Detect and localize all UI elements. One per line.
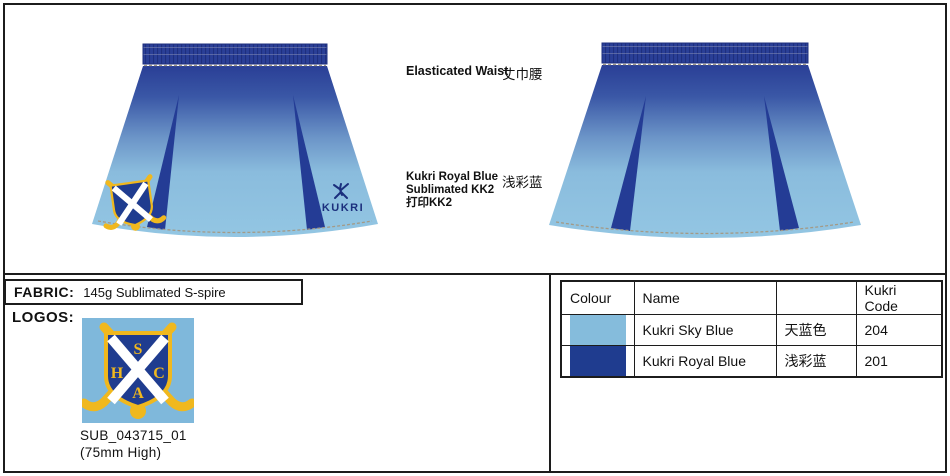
elastic-waistband: [602, 43, 808, 63]
panel-annotation: Kukri Royal Blue Sublimated KK2 打印KK2: [406, 171, 498, 210]
header-name: Name: [634, 281, 776, 315]
section-divider: [3, 273, 947, 275]
header-cn: [776, 281, 856, 315]
royal-blue-swatch: [570, 346, 626, 376]
panel-annotation-line2: Sublimated KK2: [406, 184, 498, 197]
waist-annotation: Elasticated Waist: [406, 64, 508, 78]
panel-divider: [549, 274, 551, 473]
sky-blue-swatch: [570, 315, 626, 345]
logo-caption: SUB_043715_01 (75mm High): [80, 427, 187, 461]
fabric-label: FABRIC:: [14, 284, 74, 300]
header-kukri-code: Kukri Code: [856, 281, 942, 315]
crest-letter-left: H: [111, 365, 124, 382]
skirt-back-view: [545, 41, 865, 265]
colour-name-cn: 天蓝色: [776, 315, 856, 346]
crest-letter-top: S: [134, 341, 143, 358]
swatch-cell: [561, 315, 634, 346]
crest-letter-bottom: A: [132, 385, 144, 402]
panel-annotation-line3: 打印KK2: [406, 197, 498, 210]
logo-size-note: (75mm High): [80, 444, 187, 461]
logo-code: SUB_043715_01: [80, 427, 187, 444]
panel-annotation-line1: Kukri Royal Blue: [406, 171, 498, 184]
header-colour: Colour: [561, 281, 634, 315]
kukri-code: 204: [856, 315, 942, 346]
kukri-wordmark: KUKRI: [322, 202, 364, 214]
skirt-body: [549, 65, 861, 238]
colour-table-header-row: Colour Name Kukri Code: [561, 281, 942, 315]
crest-letter-right: C: [153, 365, 165, 382]
colour-name: Kukri Royal Blue: [634, 346, 776, 377]
swatch-cell: [561, 346, 634, 377]
table-row: Kukri Sky Blue 天蓝色 204: [561, 315, 942, 346]
spec-sheet: KUKRI Elasticated Waist 丈: [0, 0, 950, 476]
logos-label: LOGOS:: [12, 309, 74, 326]
waist-annotation-cn: 丈巾腰: [502, 63, 543, 83]
fabric-box: FABRIC: 145g Sublimated S-spire: [4, 279, 303, 305]
elastic-waistband: [143, 44, 327, 64]
kukri-code: 201: [856, 346, 942, 377]
colour-name-cn: 浅彩蓝: [776, 346, 856, 377]
fabric-value: 145g Sublimated S-spire: [83, 285, 225, 300]
panel-annotation-cn: 浅彩蓝: [502, 171, 543, 191]
skirt-front-view: KUKRI: [85, 42, 385, 264]
colour-table: Colour Name Kukri Code Kukri Sky Blue 天蓝…: [560, 280, 943, 378]
club-crest-logo: S H C A: [82, 318, 194, 423]
colour-name: Kukri Sky Blue: [634, 315, 776, 346]
table-row: Kukri Royal Blue 浅彩蓝 201: [561, 346, 942, 377]
